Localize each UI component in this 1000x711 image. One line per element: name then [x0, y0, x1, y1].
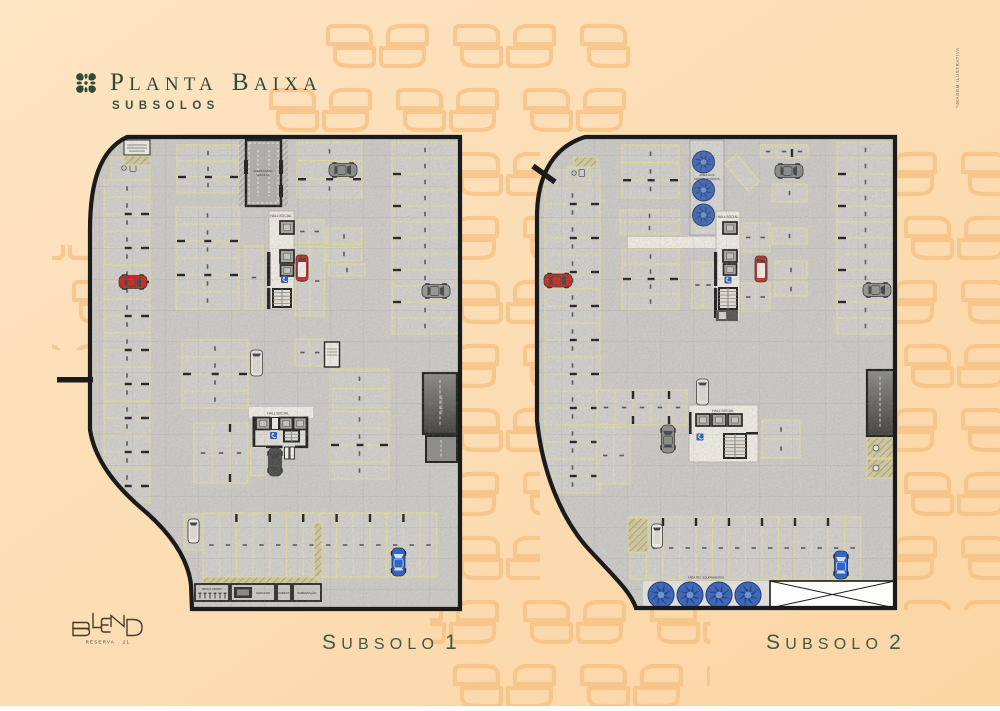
- svg-text:PLANTA BAIXA: PLANTA BAIXA: [110, 69, 322, 96]
- svg-text:RESERVA · 21: RESERVA · 21: [86, 640, 131, 645]
- svg-text:*IMAGEM ILUSTRATIVA: *IMAGEM ILUSTRATIVA: [955, 47, 960, 108]
- svg-text:SUBSOLOS: SUBSOLOS: [112, 100, 220, 112]
